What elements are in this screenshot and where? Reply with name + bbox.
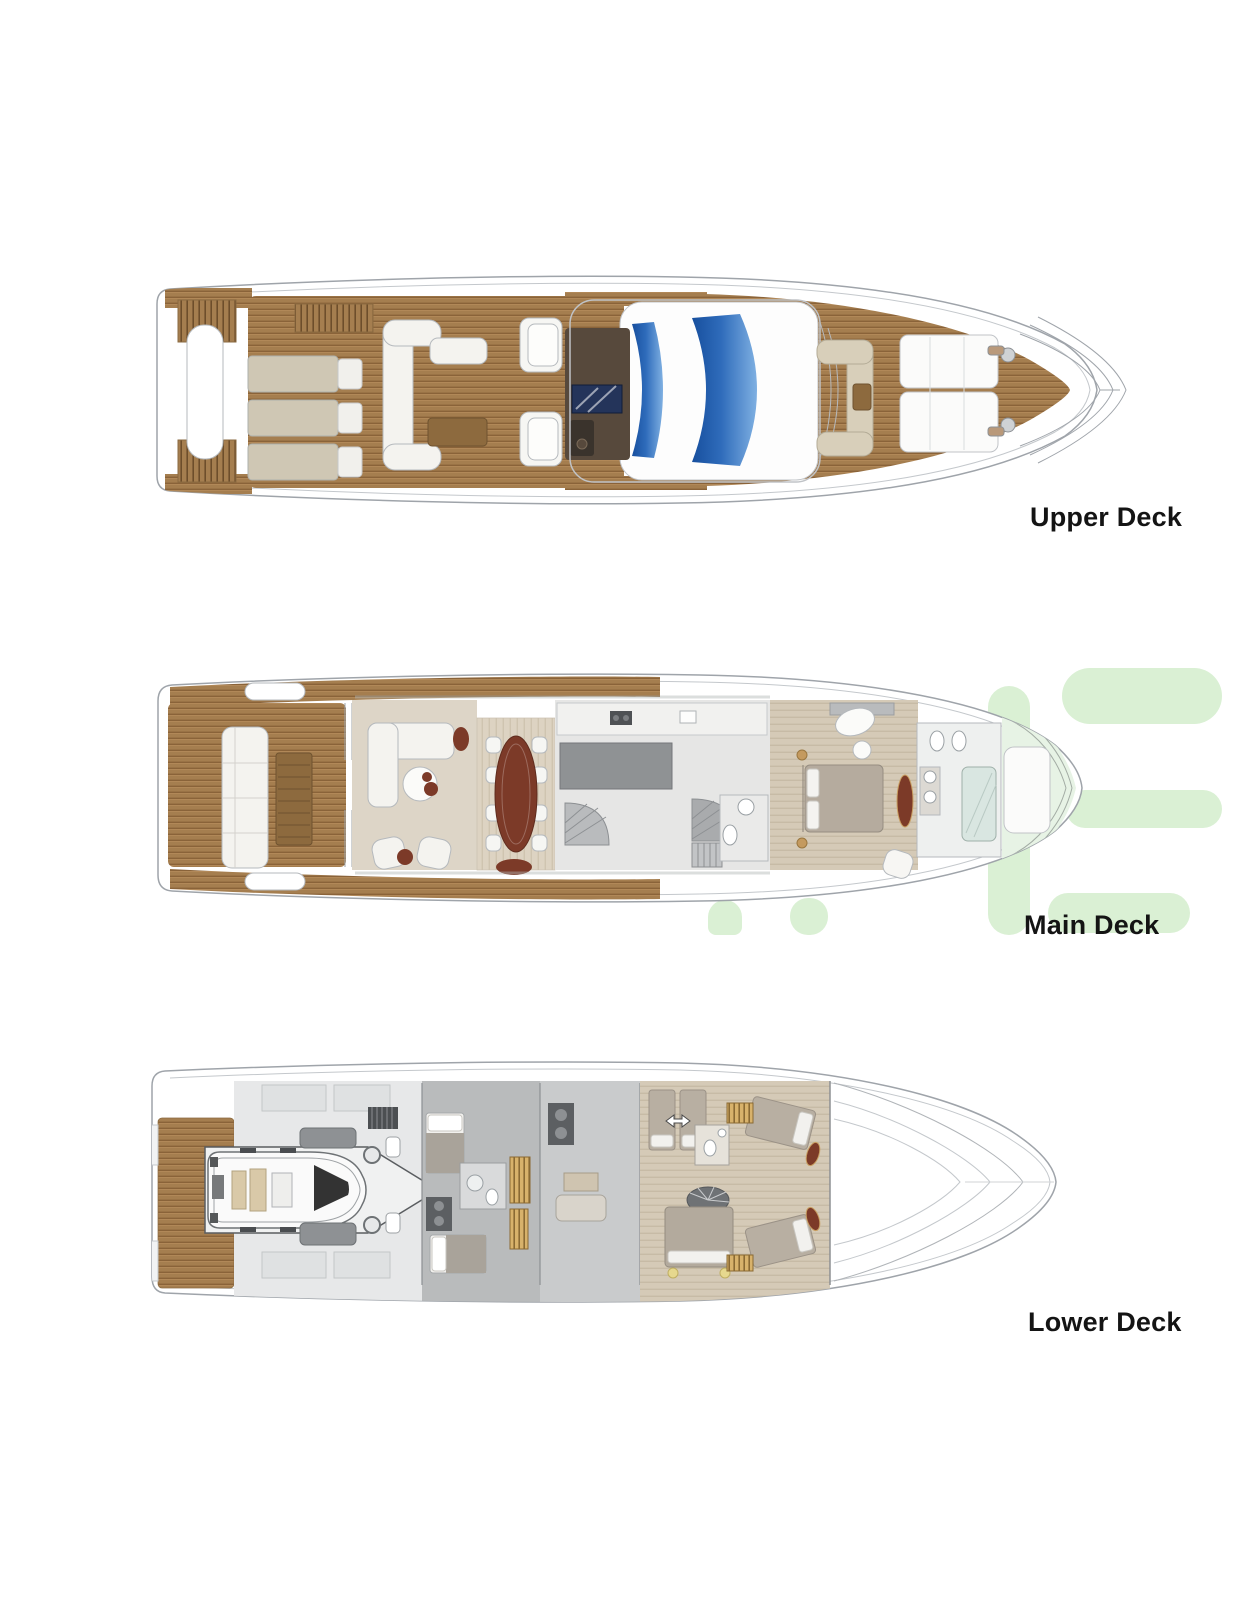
galley-island xyxy=(560,743,672,789)
washer-dryer xyxy=(426,1197,452,1231)
cockpit-table xyxy=(276,753,312,845)
sideboard-aft xyxy=(453,727,469,751)
capstan-bottom xyxy=(364,1217,380,1233)
main-deck-plan xyxy=(140,655,1130,915)
guest-cabinet-bottom xyxy=(727,1255,753,1271)
deck-plans-page: Upper Deck Main Deck Lower Deck xyxy=(0,0,1250,1619)
bar-tv-cabinet xyxy=(565,328,630,460)
crew-cabinet-1 xyxy=(510,1157,530,1203)
upper-deck-label: Upper Deck xyxy=(1030,502,1182,533)
wing-pod-bottom xyxy=(245,873,305,890)
crew-cabinet-2 xyxy=(510,1209,528,1249)
bow-sun-pads xyxy=(900,335,998,452)
guest-bathroom-top xyxy=(695,1125,729,1165)
sky-lounge-table xyxy=(428,418,487,446)
galley-counter xyxy=(557,703,767,735)
galley-sink xyxy=(680,711,696,723)
master-bathroom xyxy=(917,723,1001,857)
wing-pod-top xyxy=(245,683,305,700)
crew-bed-top xyxy=(426,1113,464,1173)
rib-tender xyxy=(208,1148,366,1232)
guest-cabinet-top xyxy=(727,1103,753,1123)
lower-deck-plan xyxy=(120,1045,1110,1305)
bow-sun-pad xyxy=(1004,747,1050,833)
stool-1 xyxy=(797,750,807,760)
garage-seat-bottom xyxy=(386,1213,400,1233)
garage-machinery-bottom xyxy=(300,1223,356,1245)
garage-machinery-top xyxy=(300,1128,356,1148)
dining-table xyxy=(495,736,537,852)
master-rug xyxy=(897,775,913,827)
capstan-top xyxy=(364,1147,380,1163)
master-bed xyxy=(803,765,883,832)
double-guest-cabin xyxy=(665,1207,733,1278)
foredeck-table xyxy=(853,384,871,410)
crew-bed-bottom xyxy=(430,1235,486,1273)
crew-mess-sofa xyxy=(556,1195,606,1221)
day-head xyxy=(720,795,768,861)
side-table xyxy=(397,849,413,865)
upper-deck-plan xyxy=(140,262,1140,522)
crew-bathroom xyxy=(460,1163,506,1209)
engine-vent xyxy=(368,1107,398,1129)
stool-2 xyxy=(797,838,807,848)
crew-mess-table xyxy=(564,1173,598,1191)
laundry-stack xyxy=(548,1103,574,1145)
mid-stair-hatch xyxy=(295,304,373,332)
lower-deck-label: Lower Deck xyxy=(1028,1307,1182,1338)
transom-walkway xyxy=(187,325,223,459)
main-deck-label: Main Deck xyxy=(1024,910,1159,941)
garage-seat-top xyxy=(386,1137,400,1157)
sun-loungers xyxy=(248,356,362,480)
